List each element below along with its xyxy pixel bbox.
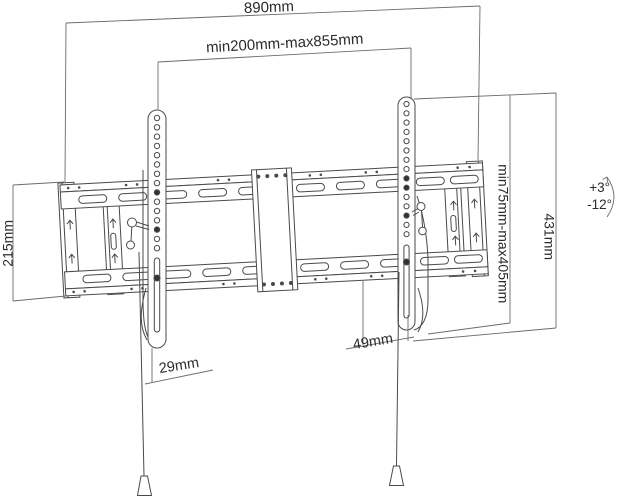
left-tension-lever[interactable] xyxy=(127,218,150,249)
dim-overall-width-lines xyxy=(65,6,480,182)
left-arm-bolt xyxy=(154,275,160,281)
dim-plate-height-lines xyxy=(13,182,66,301)
right-arm-hook xyxy=(418,288,423,332)
right-pull-cord-handle[interactable] xyxy=(390,466,404,486)
tilt-down-label: -12° xyxy=(580,198,612,213)
dim-horizontal-range-lines xyxy=(158,48,411,109)
tilt-up-label: +3° xyxy=(582,181,610,196)
left-pull-cord-handle[interactable] xyxy=(138,476,152,496)
dim-overall-width-label: 890mm xyxy=(244,0,295,17)
wall-mount-diagram xyxy=(0,0,623,500)
dim-bracket-height-label: 431mm xyxy=(541,212,556,262)
right-arm-bolt xyxy=(404,259,410,265)
center-plate xyxy=(251,168,297,292)
right-arm-holes xyxy=(404,101,409,236)
right-bracket-arm xyxy=(390,97,429,486)
dim-vertical-range-label: min75mm-max405mm xyxy=(495,159,510,309)
left-arm-holes xyxy=(154,115,159,251)
dim-plate-height-label: 215mm xyxy=(0,221,15,267)
technical-drawing-canvas: 890mm min200mm-max855mm 215mm min75mm-ma… xyxy=(0,0,623,500)
left-bracket-arm xyxy=(127,110,167,496)
